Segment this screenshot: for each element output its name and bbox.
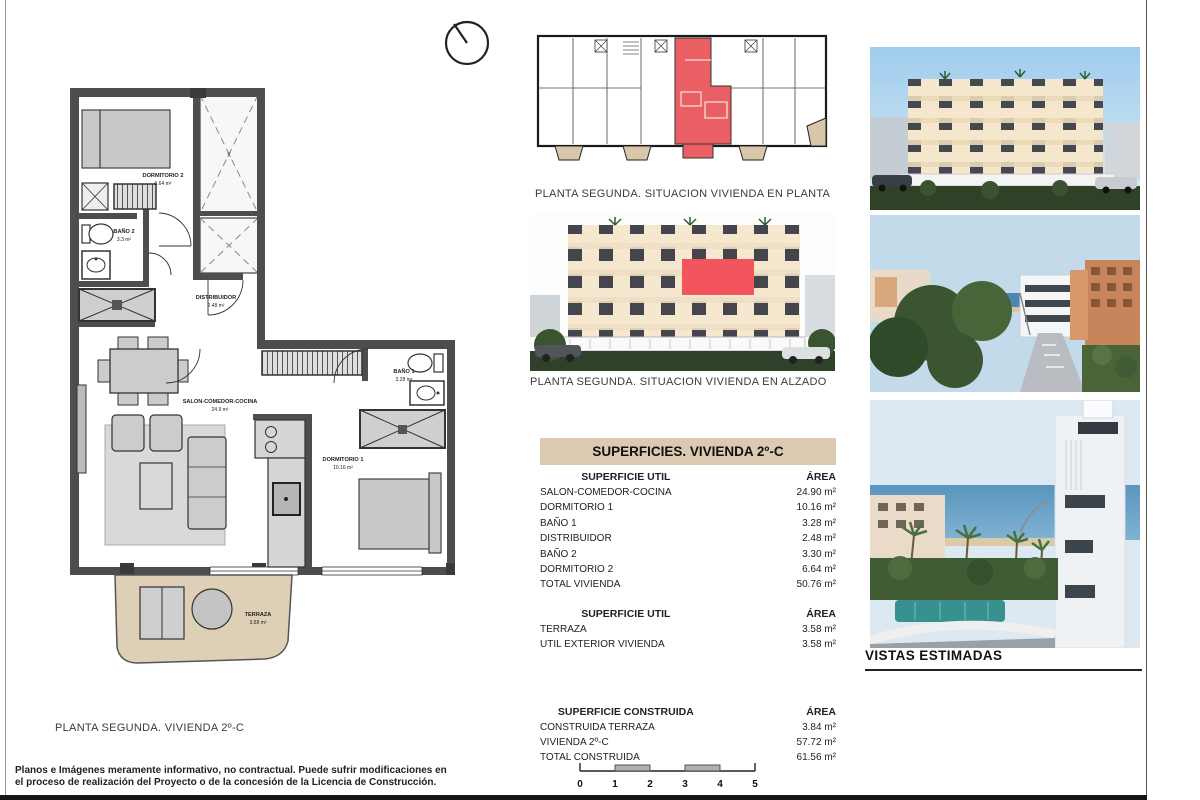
section-header: SUPERFICIE UTIL ÁREA xyxy=(540,607,836,622)
situation-plan-caption: PLANTA SEGUNDA. SITUACION VIVIENDA EN PL… xyxy=(535,188,830,200)
radiator xyxy=(114,184,156,209)
highlighted-unit-elevation xyxy=(682,259,754,295)
armchair xyxy=(112,415,144,451)
section-header: SUPERFICIE UTIL ÁREA xyxy=(540,470,836,485)
section-header: SUPERFICIE CONSTRUIDA ÁREA xyxy=(540,705,836,720)
situation-plan xyxy=(535,30,831,182)
photo-street-view xyxy=(870,215,1140,392)
table-row: VIVIENDA 2º-C57.72 m² xyxy=(540,735,836,750)
laundry-box xyxy=(79,289,155,321)
table-row: DISTRIBUIDOR2.48 m² xyxy=(540,531,836,546)
section-area-header: ÁREA xyxy=(712,607,836,622)
disclaimer: Planos e Imágenes meramente informativo,… xyxy=(15,765,447,789)
section-header-label: SUPERFICIE CONSTRUIDA xyxy=(540,705,712,720)
label-salon: SALON-COMEDOR-COCINA xyxy=(183,399,258,405)
bed-dormitorio1 xyxy=(359,473,441,553)
photo-sea-view xyxy=(870,400,1140,648)
table-row: SALON-COMEDOR-COCINA24.90 m² xyxy=(540,485,836,500)
svg-text:5: 5 xyxy=(752,779,758,790)
terrace-table xyxy=(192,589,232,629)
scale-bar: 0 1 2 3 4 5 xyxy=(575,757,765,795)
table-row: CONSTRUIDA TERRAZA3.84 m² xyxy=(540,720,836,735)
hedge xyxy=(870,186,1140,210)
svg-text:0: 0 xyxy=(577,779,583,790)
table-row: BAÑO 13.28 m² xyxy=(540,516,836,531)
coffee-table xyxy=(140,463,172,509)
sheet-bottom-border xyxy=(0,795,1147,800)
area-bano1: 3.28 m² xyxy=(396,377,413,383)
service-shafts: x xyxy=(200,95,258,273)
side-building xyxy=(805,275,835,337)
svg-text:2: 2 xyxy=(647,779,653,790)
disclaimer-line1: Planos e Imágenes meramente informativo,… xyxy=(15,765,447,777)
svg-text:x: x xyxy=(227,150,231,159)
area-salon: 24.9 m² xyxy=(212,407,229,413)
tv-sideboard xyxy=(77,385,86,473)
svg-text:4: 4 xyxy=(717,779,723,790)
table-row: DORMITORIO 26.64 m² xyxy=(540,562,836,577)
table-row: DORMITORIO 110.16 m² xyxy=(540,500,836,515)
sheet-right-border xyxy=(1146,0,1147,800)
section-header-label: SUPERFICIE UTIL xyxy=(540,470,712,485)
side-building xyxy=(870,117,910,179)
bed-dormitorio2 xyxy=(82,110,170,168)
shower-dormitorio2 xyxy=(82,183,108,210)
side-building xyxy=(1105,122,1140,179)
area-dormitorio2: 6.64 m² xyxy=(155,181,172,187)
building-facade xyxy=(908,79,1103,174)
label-bano2: BAÑO 2 xyxy=(113,228,134,235)
section-header-label: SUPERFICIE UTIL xyxy=(540,607,712,622)
apartment-floor-plan: x xyxy=(60,85,460,670)
wardrobe xyxy=(262,351,362,375)
living-set xyxy=(77,385,226,545)
sofa xyxy=(188,437,226,529)
armchair xyxy=(150,415,182,451)
scale-numbers: 0 1 2 3 4 5 xyxy=(577,779,758,790)
vistas-estimadas-title: VISTAS ESTIMADAS xyxy=(865,648,1142,671)
terrace xyxy=(115,575,292,663)
plan-sheet: x xyxy=(0,0,1200,800)
label-terraza: TERRAZA xyxy=(245,612,272,618)
svg-text:3: 3 xyxy=(682,779,688,790)
area-bano2: 3.3 m² xyxy=(117,237,132,243)
north-arrow-icon xyxy=(440,12,495,72)
table-row: TOTAL VIVIENDA50.76 m² xyxy=(540,577,836,592)
table-row: BAÑO 23.30 m² xyxy=(540,547,836,562)
elevation-render xyxy=(530,213,835,371)
kitchen xyxy=(255,420,305,567)
area-dormitorio1: 10.16 m² xyxy=(333,465,353,471)
area-terraza: 3.58 m² xyxy=(250,620,267,626)
bathroom2-fixtures xyxy=(82,224,113,279)
dining-set xyxy=(98,337,188,405)
photo-building-render xyxy=(870,47,1140,210)
surfaces-table: SUPERFICIES. VIVIENDA 2º-C SUPERFICIE UT… xyxy=(540,438,836,766)
table-row: UTIL EXTERIOR VIVIENDA3.58 m² xyxy=(540,637,836,652)
disclaimer-line2: el proceso de realización del Proyecto o… xyxy=(15,777,447,789)
white-building xyxy=(1055,400,1125,648)
area-distribuidor: 2.48 m² xyxy=(208,303,225,309)
section-area-header: ÁREA xyxy=(712,705,836,720)
label-bano1: BAÑO 1 xyxy=(393,368,414,375)
elevation-caption: PLANTA SEGUNDA. SITUACION VIVIENDA EN AL… xyxy=(530,376,827,388)
section-area-header: ÁREA xyxy=(712,470,836,485)
label-dormitorio2: DORMITORIO 2 xyxy=(143,173,184,179)
label-distribuidor: DISTRIBUIDOR xyxy=(196,295,236,301)
surfaces-table-title: SUPERFICIES. VIVIENDA 2º-C xyxy=(540,438,836,465)
tree xyxy=(952,281,1012,341)
floor-plan-caption: PLANTA SEGUNDA. VIVIENDA 2º-C xyxy=(55,722,244,734)
tree xyxy=(870,317,928,377)
label-dormitorio1: DORMITORIO 1 xyxy=(323,457,364,463)
table-row: TERRAZA3.58 m² xyxy=(540,622,836,637)
svg-text:1: 1 xyxy=(612,779,618,790)
perimeter-wall xyxy=(560,337,805,351)
sheet-left-border xyxy=(5,0,6,800)
